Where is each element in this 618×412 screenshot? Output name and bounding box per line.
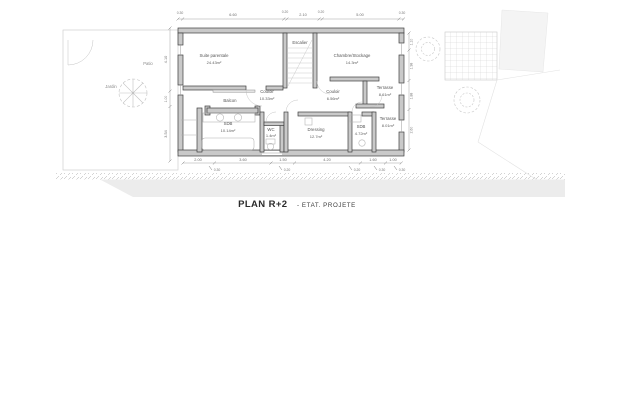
svg-text:1.00: 1.00	[164, 96, 168, 103]
room-label-sdb-2: SDB	[357, 124, 366, 129]
room-label-suite: Suite parentale	[200, 53, 230, 58]
svg-text:12.7m²: 12.7m²	[310, 134, 323, 139]
svg-text:0.30: 0.30	[214, 168, 221, 172]
svg-text:0.30: 0.30	[399, 11, 406, 15]
title-suffix: - ETAT. PROJETE	[297, 202, 356, 209]
svg-text:1.88: 1.88	[410, 93, 414, 100]
tree-icon	[119, 79, 147, 107]
svg-text:0.20: 0.20	[354, 168, 361, 172]
svg-text:4.72m²: 4.72m²	[355, 131, 368, 136]
tree-icon	[454, 87, 480, 113]
svg-text:8.61m²: 8.61m²	[379, 92, 392, 97]
svg-text:1.60: 1.60	[369, 158, 376, 162]
walls-layer	[178, 28, 404, 156]
title-main: PLAN R+2	[238, 199, 287, 210]
tree-icon	[416, 37, 440, 61]
svg-text:0.20: 0.20	[318, 10, 325, 14]
bottom-dimension-chain: 2.00 3.60 1.50 4.20 1.60 1.00 0.30 0.20 …	[182, 158, 406, 172]
dressing-unit-icon	[305, 118, 312, 125]
svg-text:2.60: 2.60	[410, 127, 414, 134]
room-label-chambre: Chambre/Stockage	[334, 53, 371, 58]
floor-plan-drawing: Patio Jardin	[0, 0, 618, 412]
room-label-couloir-1: Couloir	[260, 89, 274, 94]
svg-text:1.50: 1.50	[279, 158, 286, 162]
jardin-boundary	[63, 30, 178, 170]
room-label-balcon: Balcon	[223, 98, 237, 103]
svg-text:1.10: 1.10	[410, 39, 414, 46]
svg-text:1.00: 1.00	[389, 158, 396, 162]
svg-text:8.01m²: 8.01m²	[382, 123, 395, 128]
stairs-icon	[287, 40, 313, 86]
svg-text:14.3m²: 14.3m²	[346, 60, 359, 65]
svg-text:0.20: 0.20	[282, 10, 289, 14]
room-label-sdb-1: SDB	[224, 121, 233, 126]
jardin-label: Jardin	[105, 84, 117, 89]
svg-text:0.30: 0.30	[399, 168, 406, 172]
sink-icon	[234, 114, 241, 121]
ground-layer	[55, 173, 565, 197]
svg-text:4.20: 4.20	[323, 158, 330, 162]
svg-text:1.98: 1.98	[410, 63, 414, 70]
ground-wash	[100, 180, 565, 198]
toilet-icon	[359, 140, 365, 146]
room-label-terrasse-2: Terrasse	[380, 116, 397, 121]
right-dimension-chain: 1.10 1.98 1.88 2.60	[408, 32, 414, 152]
svg-text:4.10: 4.10	[164, 56, 168, 63]
site-layer: Patio Jardin	[63, 10, 562, 196]
svg-text:3.60: 3.60	[239, 158, 246, 162]
balcony-rail	[213, 90, 255, 92]
neighbor-roof	[499, 10, 548, 72]
svg-text:5.00: 5.00	[356, 13, 363, 17]
plan-svg: Patio Jardin	[0, 0, 618, 412]
gate-swing-icon	[68, 40, 93, 65]
room-label-dressing: Dressing	[308, 127, 326, 132]
room-label-wc: WC	[267, 127, 274, 132]
pergola-grid	[445, 32, 497, 80]
svg-text:0.30: 0.30	[177, 11, 184, 15]
top-dimension-chain: 0.30 6.60 0.20 2.10 0.20 5.00 0.30	[177, 10, 406, 21]
patio-label: Patio	[143, 61, 153, 66]
svg-text:6.56m²: 6.56m²	[327, 96, 340, 101]
svg-text:1.4m²: 1.4m²	[266, 133, 277, 138]
bathtub-icon	[202, 138, 254, 150]
svg-text:0.20: 0.20	[284, 168, 291, 172]
sink-icon	[216, 114, 223, 121]
svg-text:2.00: 2.00	[194, 158, 201, 162]
svg-text:10.14m²: 10.14m²	[221, 128, 236, 133]
room-label-couloir-2: Couloir	[326, 89, 340, 94]
svg-text:24.43m²: 24.43m²	[207, 60, 222, 65]
ground-hatch	[55, 173, 565, 180]
svg-text:2.10: 2.10	[299, 13, 306, 17]
svg-text:10.33m²: 10.33m²	[260, 96, 275, 101]
svg-text:6.60: 6.60	[229, 13, 236, 17]
room-label-escalier: Escalier	[292, 40, 308, 45]
svg-text:0.30: 0.30	[379, 168, 386, 172]
svg-text:3.54: 3.54	[164, 130, 168, 137]
room-label-terrasse-1: Terrasse	[377, 85, 394, 90]
left-dimension-chain: 4.10 1.00 3.54	[164, 27, 172, 163]
